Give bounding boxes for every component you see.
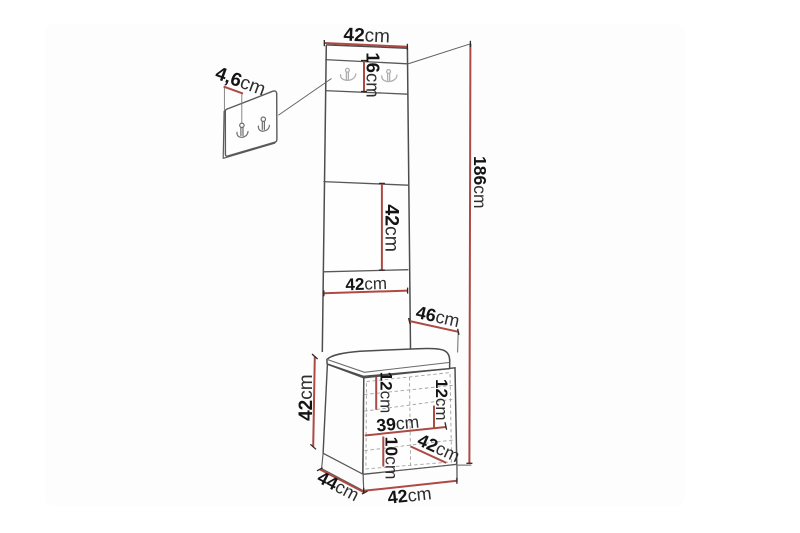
svg-text:12cm: 12cm [377, 372, 396, 414]
svg-text:42cm: 42cm [343, 25, 390, 48]
svg-text:16cm: 16cm [363, 52, 384, 97]
svg-text:12cm: 12cm [432, 379, 451, 421]
svg-text:42cm: 42cm [296, 374, 317, 420]
svg-text:42cm: 42cm [345, 274, 387, 294]
svg-text:39cm: 39cm [375, 412, 420, 436]
svg-text:42cm: 42cm [381, 204, 403, 252]
svg-text:10cm: 10cm [382, 437, 402, 480]
svg-text:186cm: 186cm [470, 156, 490, 209]
